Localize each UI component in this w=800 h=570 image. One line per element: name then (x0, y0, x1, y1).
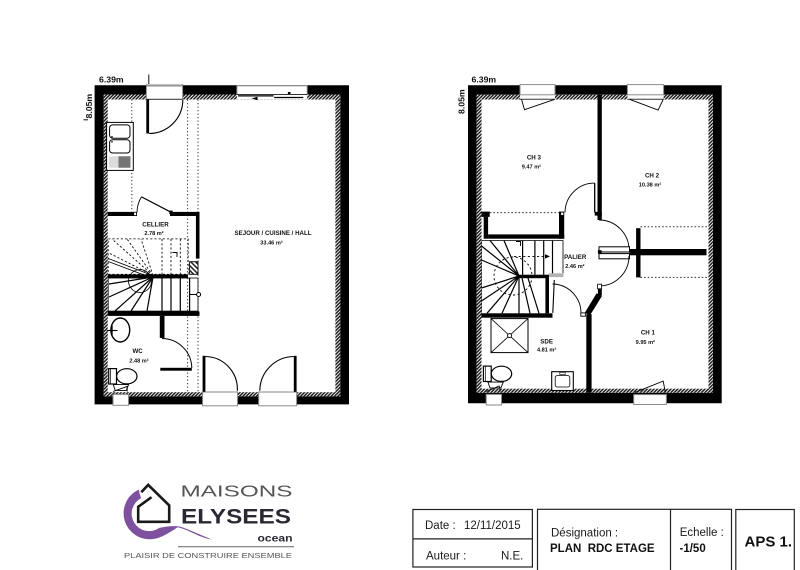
svg-text:33.46 m²: 33.46 m² (260, 240, 283, 247)
svg-text:2.78 m²: 2.78 m² (144, 230, 163, 237)
svg-text:MAISONS: MAISONS (181, 483, 293, 500)
svg-text:ELYSEES: ELYSEES (181, 505, 291, 528)
svg-text:9.47 m²: 9.47 m² (522, 164, 541, 171)
svg-text:PLAN RDC ETAGE: PLAN RDC ETAGE (550, 543, 655, 555)
svg-text:10.38 m²: 10.38 m² (639, 182, 662, 189)
svg-text:SDE: SDE (540, 339, 553, 346)
svg-text:2.46 m²: 2.46 m² (565, 263, 584, 270)
svg-text:CH 3: CH 3 (527, 155, 542, 162)
svg-text:8.05m: 8.05m (456, 89, 466, 114)
svg-text:12/11/2015: 12/11/2015 (464, 520, 521, 532)
svg-text:6.39m: 6.39m (472, 75, 497, 85)
svg-text:N.E.: N.E. (501, 551, 523, 563)
svg-text:2.48 m²: 2.48 m² (129, 358, 148, 365)
svg-text:ocean: ocean (258, 533, 293, 545)
svg-text:CH 1: CH 1 (641, 330, 656, 337)
svg-text:SEJOUR / CUISINE / HALL: SEJOUR / CUISINE / HALL (235, 230, 312, 237)
svg-text:CH 2: CH 2 (645, 173, 660, 180)
svg-text:6.39m: 6.39m (99, 75, 124, 85)
svg-text:Désignation :: Désignation : (551, 528, 618, 540)
svg-text:9.95 m²: 9.95 m² (636, 339, 655, 346)
svg-text:-1/50: -1/50 (680, 543, 706, 555)
svg-text:PLAISIR DE CONSTRUIRE ENSEMBLE: PLAISIR DE CONSTRUIRE ENSEMBLE (124, 553, 292, 560)
svg-text:Auteur :: Auteur : (426, 551, 466, 563)
svg-text:4.81 m²: 4.81 m² (537, 347, 556, 354)
svg-text:8.05m: 8.05m (84, 94, 94, 119)
svg-text:WC: WC (132, 348, 143, 355)
svg-text:CELLIER: CELLIER (142, 222, 169, 229)
svg-text:PALIER: PALIER (564, 254, 587, 261)
svg-text:APS 1.: APS 1. (745, 534, 793, 551)
svg-text:Echelle :: Echelle : (680, 527, 724, 539)
svg-text:Date :: Date : (425, 520, 456, 532)
